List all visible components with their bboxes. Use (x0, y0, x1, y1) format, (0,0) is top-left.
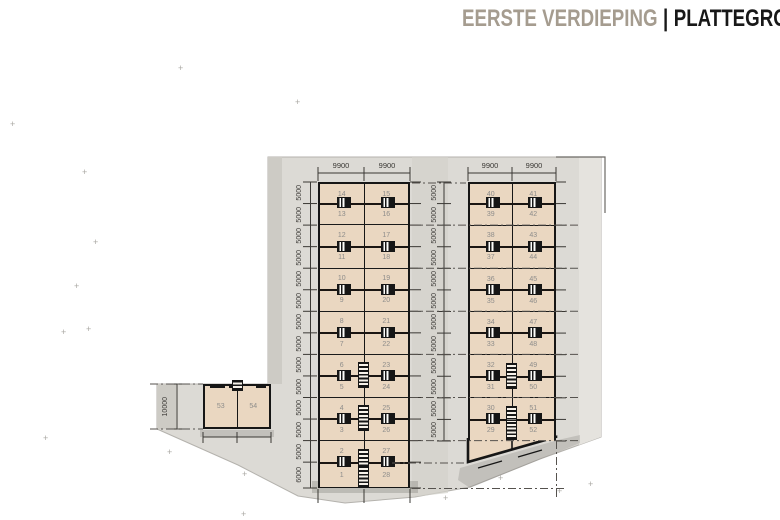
dim-row: 5000 (426, 268, 443, 290)
dim-5000-label: 5000 (431, 250, 438, 266)
unit-number: 12 (338, 232, 346, 239)
survey-cross: + (178, 64, 183, 73)
unit-number: 42 (529, 211, 537, 218)
unit-number: 3 (340, 427, 344, 434)
title-separator: | (663, 5, 668, 32)
staircase-icon (337, 327, 351, 338)
unit-number: 47 (529, 319, 537, 326)
dim-row: 5000 (291, 182, 308, 204)
dim-5000-label: 5000 (431, 401, 438, 417)
unit-number: 26 (382, 427, 390, 434)
neighbor-corner-line (556, 157, 605, 213)
parcel-left-band (268, 157, 282, 384)
dim-row: 5000 (426, 419, 443, 441)
unit-number: 53 (217, 403, 225, 410)
unit-row: 1316 (320, 203, 408, 225)
survey-cross: + (588, 480, 593, 489)
dim-5000-label: 5000 (296, 422, 303, 438)
survey-cross: + (241, 510, 246, 519)
unit-number: 5 (340, 384, 344, 391)
staircase-icon (381, 413, 395, 424)
dim-row: 5000 (291, 397, 308, 419)
survey-cross: + (74, 282, 79, 291)
dim-row: 5000 (426, 225, 443, 247)
dim-row: 5000 (291, 204, 308, 226)
unit-number: 21 (382, 318, 390, 325)
unit-number: 1 (340, 472, 344, 479)
staircase-icon (528, 197, 542, 208)
unit-number: 54 (249, 403, 257, 410)
staircase-icon (528, 413, 542, 424)
stair-core-icon (358, 362, 369, 388)
unit-number: 13 (338, 211, 346, 218)
dim-5000-label: 5000 (431, 422, 438, 438)
staircase-icon (528, 284, 542, 295)
stair-core-icon (506, 420, 517, 440)
dim-5000-label: 5000 (431, 336, 438, 352)
survey-cross: + (82, 168, 87, 177)
dim-row: 5000 (291, 268, 308, 290)
unit-number: 39 (487, 211, 495, 218)
staircase-icon (337, 284, 351, 295)
unit-number: 28 (382, 472, 390, 479)
staircase-icon (337, 241, 351, 252)
dim-5000-label: 5000 (296, 379, 303, 395)
survey-cross: + (93, 238, 98, 247)
staircase-icon (486, 241, 500, 252)
dim-9900: 9900 (319, 162, 363, 170)
unit-number: 2 (340, 448, 344, 455)
staircase-icon (337, 413, 351, 424)
dim-row: 5000 (291, 441, 308, 463)
staircase-icon (486, 197, 500, 208)
unit-number: 51 (529, 405, 537, 412)
staircase-icon (337, 370, 351, 381)
unit-53: 53 (205, 386, 238, 427)
dim-5000-label: 5000 (296, 357, 303, 373)
unit-number: 37 (487, 254, 495, 261)
title-floor: EERSTE VERDIEPING (462, 5, 658, 32)
unit-number: 24 (382, 384, 390, 391)
dim-row: 5000 (291, 225, 308, 247)
unit-number: 43 (529, 232, 537, 239)
staircase-icon (381, 197, 395, 208)
dim-9900: 9900 (468, 162, 512, 170)
unit-number: 50 (529, 384, 537, 391)
unit-row: 1118 (320, 246, 408, 268)
title-type: PLATTEGROND (674, 5, 780, 32)
unit-number: 34 (487, 319, 495, 326)
staircase-icon (381, 370, 395, 381)
unit-number: 44 (529, 254, 537, 261)
unit-number: 6 (340, 362, 344, 369)
unit-row: 722 (320, 332, 408, 354)
dim-5000-label: 5000 (431, 314, 438, 330)
survey-cross: + (557, 487, 562, 496)
dim-row: 6000 (291, 462, 308, 488)
unit-number: 16 (382, 211, 390, 218)
porch-step-2 (518, 450, 542, 457)
unit-number: 38 (487, 232, 495, 239)
unit-number: 30 (487, 405, 495, 412)
shadow-right-building (458, 435, 580, 488)
staircase-icon (337, 456, 351, 467)
staircase-icon (337, 197, 351, 208)
dim-10000-label: 10000 (162, 397, 169, 416)
dim-5000-label: 5000 (296, 207, 303, 223)
dim-row: 5000 (426, 290, 443, 312)
window-mark (210, 384, 225, 388)
dim-row: 5000 (426, 376, 443, 398)
unit-row: 920 (320, 289, 408, 311)
survey-cross: + (498, 474, 503, 483)
staircase-icon (486, 284, 500, 295)
survey-cross: + (10, 120, 15, 129)
dim-row: 5000 (291, 354, 308, 376)
dim-5000-label: 5000 (431, 271, 438, 287)
dim-5000-label: 5000 (431, 293, 438, 309)
unit-number: 52 (529, 427, 537, 434)
stair-core-icon (358, 466, 369, 488)
stair-core-icon (506, 363, 517, 389)
unit-number: 17 (382, 232, 390, 239)
dim-row: 5000 (291, 376, 308, 398)
staircase-icon (381, 327, 395, 338)
unit-number: 11 (338, 254, 345, 261)
dim-5000-label: 5000 (296, 250, 303, 266)
unit-number: 29 (487, 427, 495, 434)
dim-10000: 10000 (158, 384, 172, 429)
building-right: 4041394238433744364535463447334832493150… (468, 182, 556, 441)
unit-number: 48 (529, 341, 537, 348)
dim-5000-label: 5000 (296, 444, 303, 460)
dim-9900: 9900 (512, 162, 556, 170)
staircase-icon (486, 413, 500, 424)
dim-row: 5000 (291, 419, 308, 441)
parcel-right-band (579, 157, 601, 445)
window-mark (256, 384, 266, 388)
dim-5000-label: 5000 (296, 228, 303, 244)
dim-5000-label: 5000 (431, 185, 438, 201)
unit-number: 4 (340, 405, 344, 412)
unit-28: 28 (365, 464, 409, 488)
stair-core-icon (232, 380, 243, 391)
dim-5000-label: 5000 (296, 293, 303, 309)
survey-cross: + (86, 325, 91, 334)
dimension-strip-middle: 5000500050005000500050005000500050005000… (426, 182, 443, 441)
unit-number: 18 (382, 254, 390, 261)
dim-5000-label: 5000 (296, 271, 303, 287)
survey-cross: + (295, 98, 300, 107)
staircase-icon (381, 241, 395, 252)
survey-cross: + (242, 470, 247, 479)
unit-number: 7 (340, 341, 344, 348)
page-title: EERSTE VERDIEPING|PLATTEGROND (462, 5, 780, 35)
dim-5000-label: 5000 (296, 400, 303, 416)
dim-row: 5000 (426, 204, 443, 226)
unit-54: 54 (238, 386, 270, 427)
unit-number: 22 (382, 341, 390, 348)
unit-number: 35 (487, 298, 495, 305)
unit-number: 32 (487, 362, 495, 369)
dim-5000-label: 5000 (296, 336, 303, 352)
unit-number: 25 (382, 405, 390, 412)
unit-number: 23 (382, 362, 390, 369)
unit-number: 46 (529, 298, 537, 305)
staircase-icon (528, 370, 542, 381)
dim-row: 5000 (426, 398, 443, 420)
dim-5000-label: 5000 (296, 185, 303, 201)
staircase-icon (528, 327, 542, 338)
dim-row: 5000 (426, 355, 443, 377)
dim-5000-label: 5000 (431, 228, 438, 244)
survey-cross: + (61, 328, 66, 337)
staircase-icon (381, 456, 395, 467)
unit-row: 1019 (320, 268, 408, 290)
dim-5000-label: 5000 (296, 314, 303, 330)
dim-5000-label: 6000 (296, 467, 303, 483)
building-left: 1415131612171118101992082172262352442532… (318, 182, 410, 488)
floor-plan: 1415131612171118101992082172262352442532… (0, 0, 780, 520)
dim-5000-label: 5000 (431, 207, 438, 223)
unit-row: 1217 (320, 224, 408, 246)
stair-core-icon (358, 405, 369, 431)
dim-row: 5000 (426, 247, 443, 269)
survey-cross: + (43, 434, 48, 443)
dim-row: 5000 (291, 311, 308, 333)
unit-number: 31 (487, 384, 495, 391)
unit-number: 45 (529, 276, 537, 283)
dim-5000-label: 5000 (431, 358, 438, 374)
unit-number: 33 (487, 341, 495, 348)
staircase-icon (381, 284, 395, 295)
unit-number: 49 (529, 362, 537, 369)
dim-row: 5000 (291, 290, 308, 312)
dim-5000-label: 5000 (431, 379, 438, 395)
unit-number: 19 (382, 275, 390, 282)
staircase-icon (528, 241, 542, 252)
porch-step-1 (478, 461, 502, 468)
unit-number: 9 (340, 297, 344, 304)
unit-row: 821 (320, 311, 408, 333)
unit-number: 8 (340, 318, 344, 325)
shadow-small-building (200, 430, 274, 437)
survey-cross: + (167, 448, 172, 457)
unit-number: 10 (338, 275, 346, 282)
dim-9900: 9900 (365, 162, 409, 170)
unit-number: 36 (487, 276, 495, 283)
dim-row: 5000 (426, 333, 443, 355)
unit-number: 20 (382, 297, 390, 304)
survey-cross: + (443, 494, 448, 503)
dim-row: 5000 (426, 182, 443, 204)
unit-number: 27 (382, 448, 390, 455)
dim-row: 5000 (291, 247, 308, 269)
dimension-strip-left: 5000500050005000500050005000500050005000… (291, 182, 308, 488)
staircase-icon (486, 327, 500, 338)
dim-row: 5000 (426, 311, 443, 333)
dim-row: 5000 (291, 333, 308, 355)
staircase-icon (486, 370, 500, 381)
